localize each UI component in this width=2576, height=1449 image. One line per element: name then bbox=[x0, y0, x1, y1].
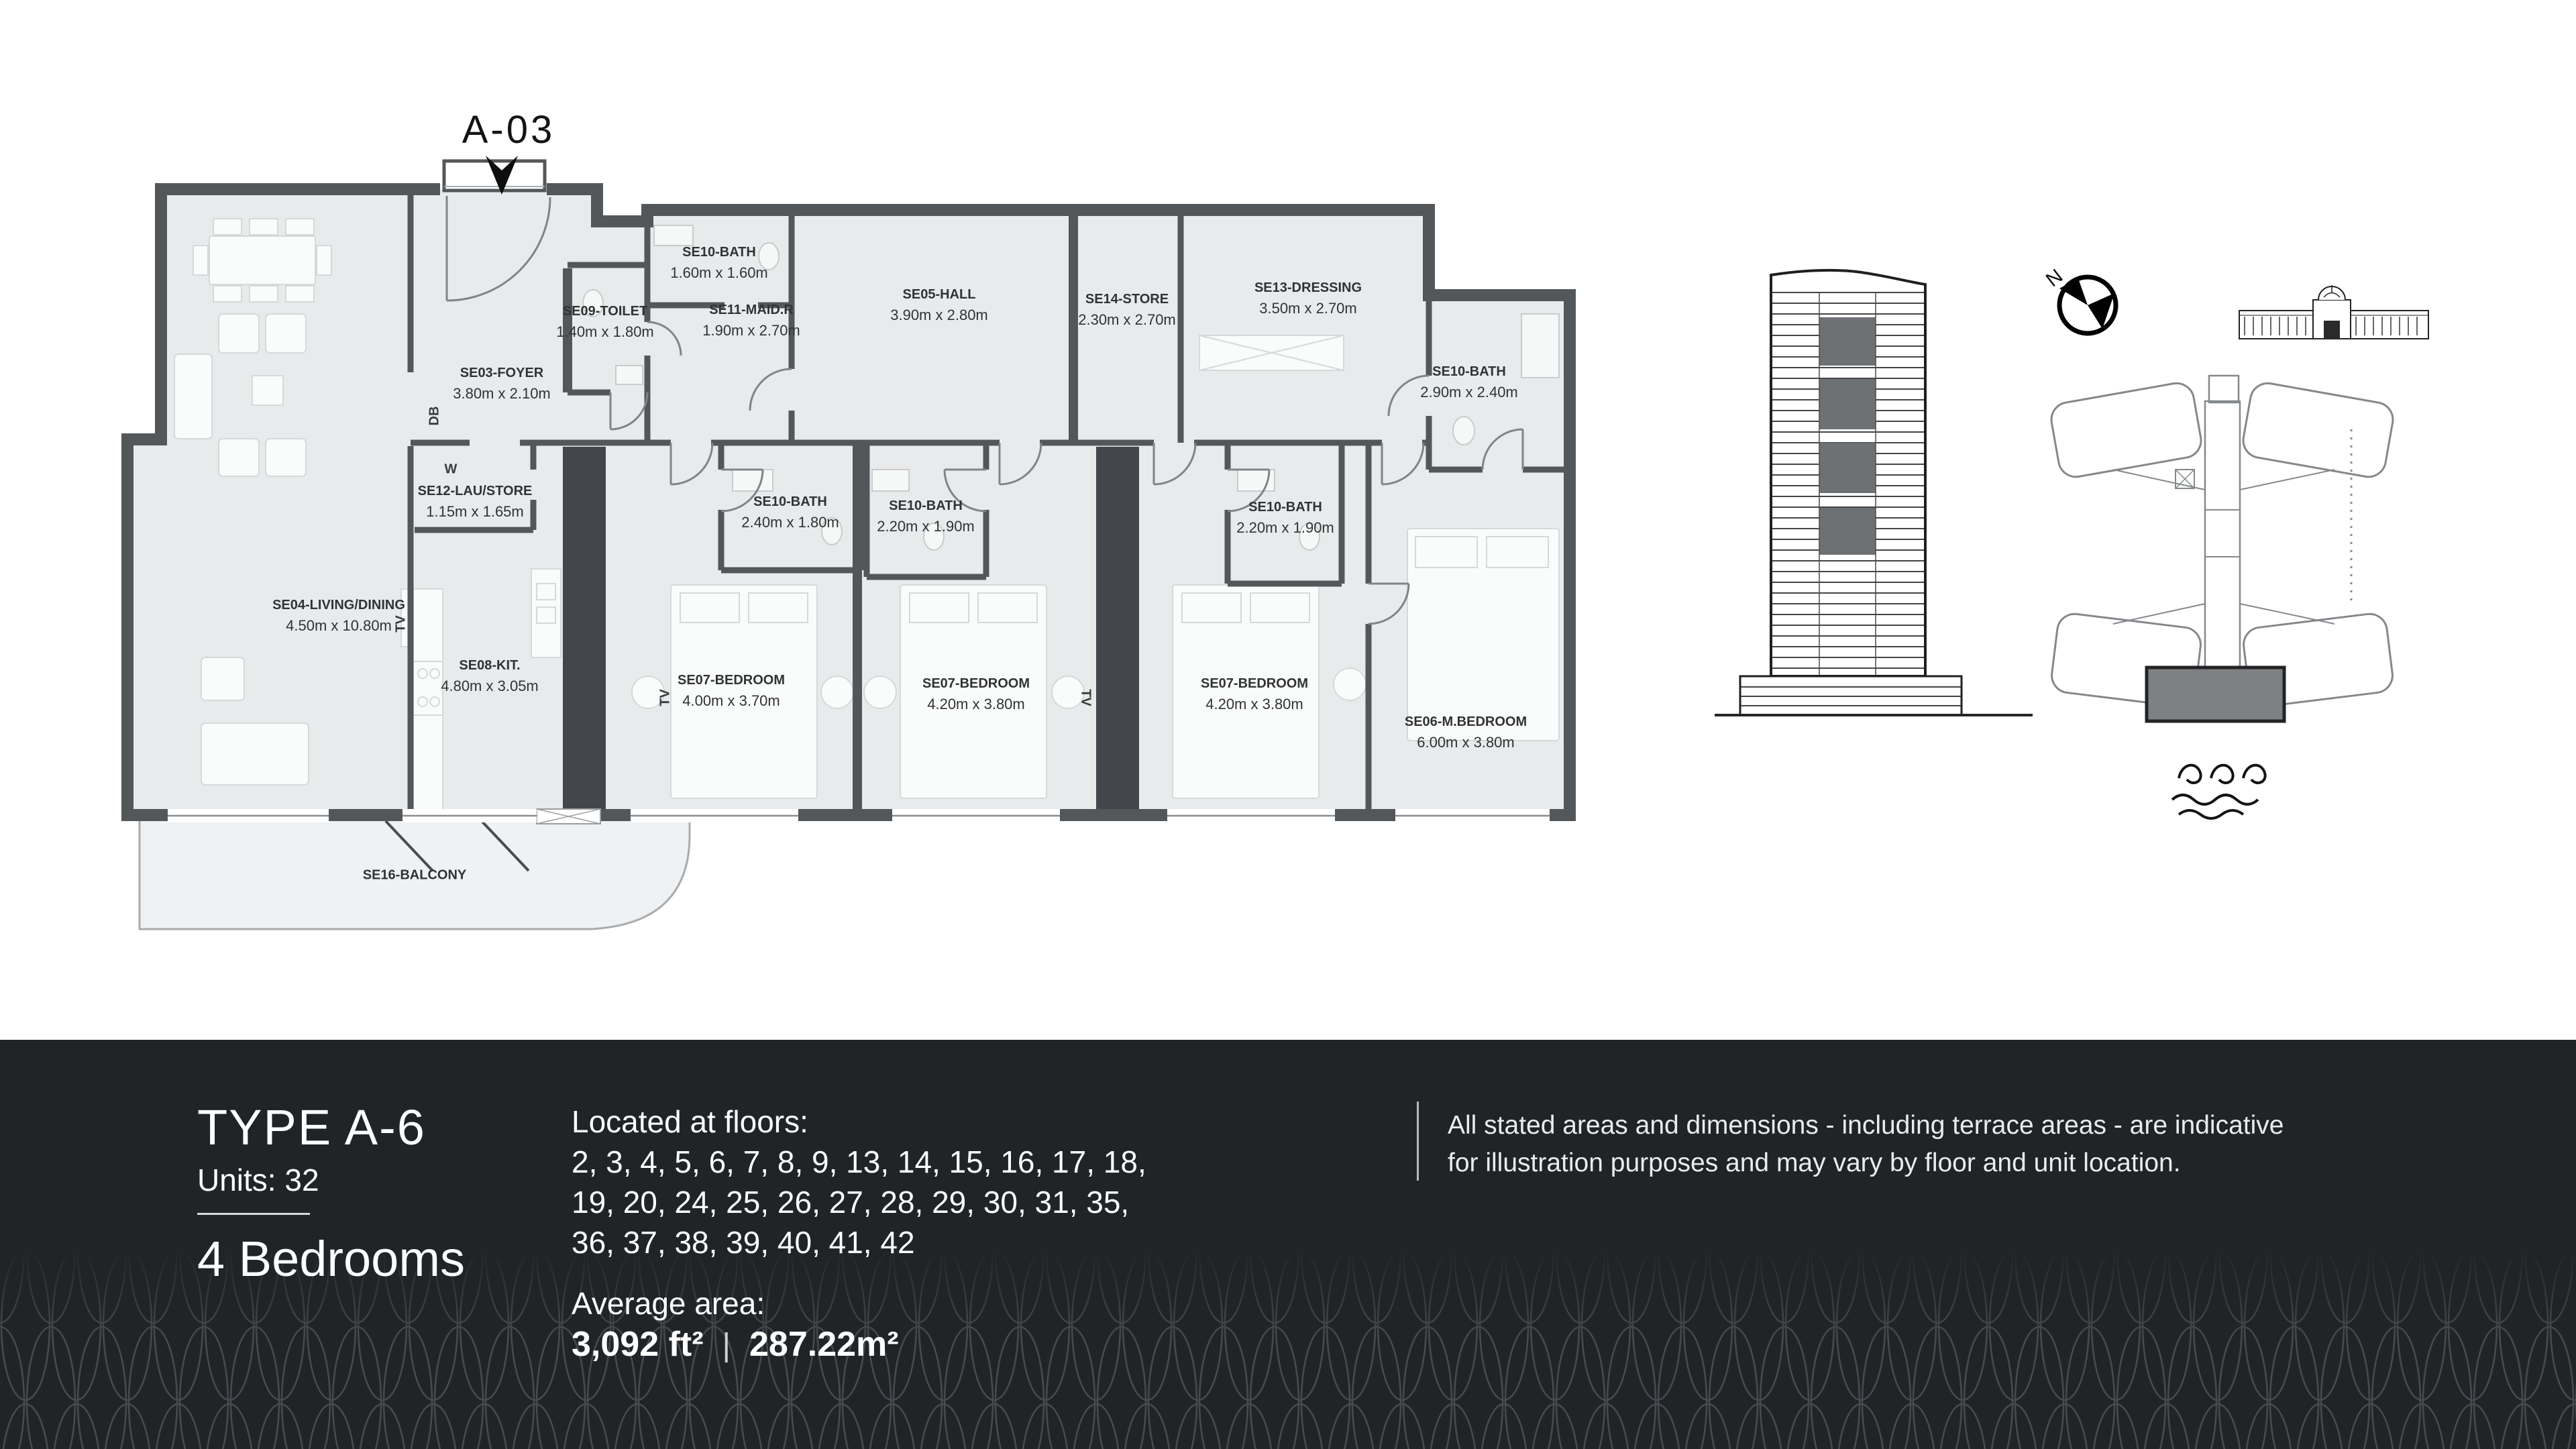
wall-annotation-tv3: TV bbox=[1078, 689, 1093, 706]
unit-marker-label: A-03 bbox=[435, 107, 582, 152]
compass-icon bbox=[2059, 277, 2116, 333]
disclaimer-text: All stated areas and dimensions - includ… bbox=[1448, 1107, 2284, 1182]
room-label-maid: SE11-MAID.R1.90m x 2.70m bbox=[702, 302, 800, 340]
unit-location-highlight bbox=[2147, 667, 2284, 721]
room-label-bed2: SE07-BEDROOM4.20m x 3.80m bbox=[922, 676, 1030, 714]
key-plan bbox=[2049, 277, 2428, 818]
room-label-bed1: SE07-BEDROOM4.00m x 3.70m bbox=[678, 672, 785, 710]
dining-table bbox=[209, 236, 315, 284]
floor-plate-outline bbox=[2049, 376, 2396, 708]
apartment-floor-plan bbox=[127, 156, 1570, 929]
area-sqft: 3,092 ft² bbox=[572, 1325, 704, 1364]
disclaimer-divider bbox=[1417, 1102, 1419, 1181]
room-label-hall: SE05-HALL3.90m x 2.80m bbox=[890, 286, 988, 325]
sofa bbox=[201, 723, 309, 785]
room-label-foyer: SE03-FOYER3.80m x 2.10m bbox=[453, 365, 551, 403]
bedrooms-label: 4 Bedrooms bbox=[197, 1230, 465, 1287]
room-label-master: SE06-M.BEDROOM6.00m x 3.80m bbox=[1405, 714, 1527, 752]
podium bbox=[1740, 676, 1962, 715]
area-sqm: 287.22m² bbox=[749, 1325, 899, 1364]
room-label-dressing: SE13-DRESSING3.50m x 2.70m bbox=[1254, 280, 1362, 318]
divider-rule bbox=[197, 1213, 310, 1215]
sea-waves-icon bbox=[2172, 765, 2265, 818]
room-label-bath-master: SE10-BATH2.90m x 2.40m bbox=[1420, 364, 1518, 402]
armchair bbox=[219, 314, 259, 353]
wall-annotation-tv1: TV bbox=[394, 615, 409, 633]
floors-line: 19, 20, 24, 25, 26, 27, 28, 29, 30, 31, … bbox=[572, 1182, 1146, 1222]
sofa bbox=[174, 354, 212, 439]
building-elevation bbox=[1715, 270, 2033, 715]
room-label-bath-maid: SE10-BATH1.60m x 1.60m bbox=[670, 244, 768, 282]
area-separator: | bbox=[722, 1328, 731, 1363]
floors-line: 36, 37, 38, 39, 40, 41, 42 bbox=[572, 1222, 1146, 1263]
room-label-living: SE04-LIVING/DINING4.50m x 10.80m bbox=[272, 597, 405, 635]
coffee-table bbox=[252, 376, 283, 405]
wall-annotation-w: W bbox=[445, 462, 458, 478]
room-label-bath2: SE10-BATH2.20m x 1.90m bbox=[877, 498, 975, 536]
room-label-bath3: SE10-BATH2.20m x 1.90m bbox=[1236, 499, 1334, 537]
armchair bbox=[266, 314, 306, 353]
info-bar: TYPE A-6 Units: 32 4 Bedrooms Located at… bbox=[0, 1040, 2576, 1449]
room-label-bed3: SE07-BEDROOM4.20m x 3.80m bbox=[1201, 676, 1308, 714]
palace-icon bbox=[2239, 285, 2428, 339]
stove bbox=[413, 661, 443, 715]
room-label-bath1: SE10-BATH2.40m x 1.80m bbox=[741, 494, 839, 532]
service-shaft bbox=[563, 447, 606, 815]
wall-annotation-tv2: TV bbox=[658, 689, 674, 706]
floors-heading: Located at floors: bbox=[572, 1102, 1146, 1142]
room-label-store: SE14-STORE2.30m x 2.70m bbox=[1078, 291, 1176, 329]
room-label-kitchen: SE08-KIT.4.80m x 3.05m bbox=[441, 657, 539, 696]
floors-block: Located at floors: 2, 3, 4, 5, 6, 7, 8, … bbox=[572, 1102, 1146, 1263]
room-label-laustore: SE12-LAU/STORE1.15m x 1.65m bbox=[418, 483, 533, 521]
type-title: TYPE A-6 bbox=[197, 1099, 426, 1156]
room-label-toilet: SE09-TOILET1.40m x 1.80m bbox=[556, 303, 654, 341]
room-label-balcony: SE16-BALCONY bbox=[363, 867, 466, 884]
average-area-values: 3,092 ft²|287.22m² bbox=[572, 1324, 899, 1364]
wall-annotation-db: DB bbox=[427, 407, 443, 426]
floors-line: 2, 3, 4, 5, 6, 7, 8, 9, 13, 14, 15, 16, … bbox=[572, 1142, 1146, 1182]
brochure-page: A-03 N SE03-FOYER3.80m x 2.10mSE09-TOILE… bbox=[0, 0, 2576, 1449]
average-area-heading: Average area: bbox=[572, 1285, 765, 1322]
service-shaft bbox=[1096, 447, 1139, 815]
units-count: Units: 32 bbox=[197, 1162, 319, 1198]
